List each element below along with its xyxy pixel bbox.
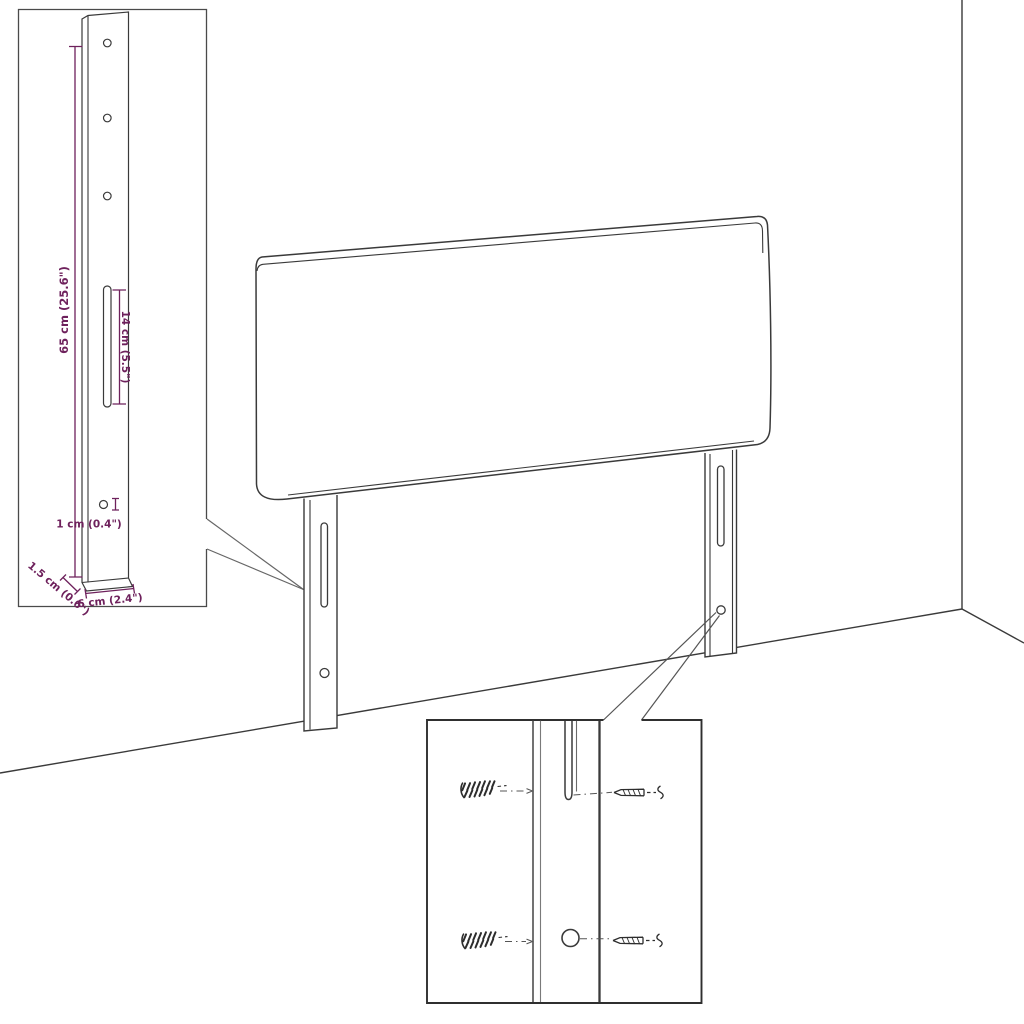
label-slot-length: 14 cm (5.5") xyxy=(119,311,131,384)
right-leg-hole xyxy=(717,606,725,614)
mounting-callout-lines xyxy=(604,613,720,721)
strip-hole xyxy=(562,930,579,947)
bracket-drawing xyxy=(82,12,133,591)
bracket-inset: 65 cm (25.6") 14 cm (5.5") 1 cm (0.4") 1… xyxy=(19,10,207,619)
right-leg-slot xyxy=(718,466,725,546)
inset-callout-lines xyxy=(207,519,304,590)
product-diagram: 65 cm (25.6") 14 cm (5.5") 1 cm (0.4") 1… xyxy=(0,0,1024,1024)
left-leg-hole xyxy=(320,669,329,678)
bracket-hole-middle xyxy=(104,114,112,122)
bracket-hole-lower xyxy=(104,192,112,200)
bracket-small-hole xyxy=(100,501,108,509)
floor-line-right xyxy=(962,609,1024,643)
label-hole-diameter: 1 cm (0.4") xyxy=(56,519,121,531)
diagram-canvas: 65 cm (25.6") 14 cm (5.5") 1 cm (0.4") 1… xyxy=(0,0,1024,1024)
bracket-slot xyxy=(104,286,112,407)
label-bracket-height: 65 cm (25.6") xyxy=(57,266,71,354)
mounting-detail xyxy=(427,720,702,1003)
headboard-right-leg xyxy=(705,450,737,658)
headboard-left-leg xyxy=(304,495,337,731)
headboard-panel xyxy=(256,216,771,499)
bracket-hole-top xyxy=(104,39,112,47)
left-leg-slot xyxy=(321,523,328,607)
